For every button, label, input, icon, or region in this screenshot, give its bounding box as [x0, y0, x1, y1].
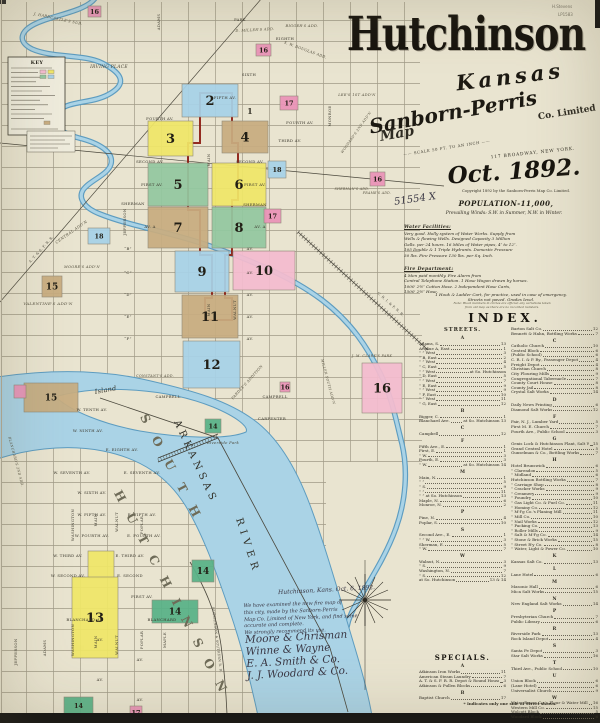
map-text-label: Riverside Park [206, 440, 240, 445]
map-text-label: 1 [247, 106, 253, 116]
map-text-label: AV. A [253, 224, 265, 229]
map-text-label: FOURTH AV. [146, 116, 174, 121]
block-number: 17 [284, 99, 293, 107]
map-text-label: AV. [136, 657, 144, 662]
block-number: 15 [45, 394, 58, 404]
index-entry: Rock Island Depot4 [511, 637, 598, 642]
index-entry: Crystal Salt Works14 [511, 390, 598, 395]
map-text-label: W. FIFTH AV. [78, 512, 107, 517]
index-entry: Mica Salt Works15 [511, 590, 598, 595]
index-entry: Lane Hotel6 [511, 573, 598, 578]
index-buildings-list: Barton Salt Co.12Bennett & Hahn, Bottlin… [511, 327, 598, 720]
map-text-label: W. SIXTH AV. [78, 490, 107, 495]
map-text-label: W. FOURTH AV. [75, 533, 109, 538]
index-entry: Woodard Block6 [511, 715, 598, 720]
note-lines: Note: Block numbers in circles are offic… [414, 302, 590, 310]
map-text-label: AV. [96, 677, 104, 682]
map-text-label: E. SECOND [117, 573, 143, 578]
map-text-label: VALENTINE'S ADD'N [23, 301, 73, 306]
index-entry: New England Salt Works14 [511, 602, 598, 607]
block-number: 16 [373, 382, 391, 397]
block-number: 12 [202, 358, 220, 373]
map-text-label: WALNUT [114, 512, 119, 532]
index-entry: ” W.7 [419, 547, 506, 552]
map-text-label: JEFFERSON [13, 638, 18, 666]
block-number: 16 [373, 175, 383, 183]
map-text-label: MONROE [327, 106, 332, 127]
fire-department-block: Fire Department: 4 Men paid monthly. Fir… [404, 266, 598, 295]
index-entry: ” G, East12 [419, 402, 506, 407]
map-text-label: BLANCHARD AV. [66, 617, 103, 622]
map-text-label: BLANCHARD [148, 617, 177, 622]
index-entry: ” Water, Light & Power Co.10 [511, 547, 598, 552]
map-text-label: FOURTH AV. [286, 120, 314, 125]
key-box [8, 57, 65, 135]
map-text-label: WALNUT [114, 635, 119, 655]
block-number: 8 [234, 221, 243, 236]
map-text-label: POPLAR [139, 631, 144, 649]
index-entry: Fourth Ave., Public School3 [511, 430, 598, 435]
index-streets-list: AAdams, S.13Avenue A, East1 ” ” West3 ” … [419, 334, 506, 583]
map-text-label: AV. [136, 697, 144, 702]
map-text-label: IRVING PLACE [89, 65, 128, 70]
map-text-label: “D” [124, 292, 132, 297]
block-number: 3 [166, 132, 175, 147]
map-text-label: MAIN [93, 513, 98, 526]
block-number: 16 [259, 46, 269, 54]
map-text-label: MAIN [206, 153, 211, 166]
block-number: 16 [90, 8, 100, 16]
map-text-label: AV. A [143, 224, 155, 229]
index-entry: Blanchard Ave.at So. Hutchinson 13 [419, 419, 506, 424]
block-number: 14 [197, 567, 210, 577]
map-text-label: E. EIGHTH AV. [106, 447, 139, 452]
map-text-label: MAPLE [162, 632, 167, 648]
block-number: 14 [74, 702, 84, 710]
map-text-label: FIFTH AV. [214, 95, 236, 100]
map-text-label: “F” [124, 336, 131, 341]
block-number: 10 [255, 264, 273, 279]
water-facilities-block: Water Facilities: Very good. Holly syste… [404, 224, 598, 258]
block-number: 7 [173, 221, 182, 236]
prevailing-winds-line: Prevailing Winds: S.W. in Summer, N.W. i… [414, 211, 594, 217]
map-text-label: PARK [234, 17, 246, 22]
index-entry: ” W.at So. Hutchinson 14 [419, 463, 506, 468]
map-text-label: SECOND AV. [236, 159, 264, 164]
map-block [88, 551, 114, 578]
block-number: 16 [280, 383, 290, 391]
index-columns: STREETS. AAdams, S.13Avenue A, East1 ” ”… [419, 327, 599, 701]
map-text-label: KEY [31, 60, 44, 66]
index-entry: Monroe, N.2 [419, 503, 506, 508]
water-facilities-heading: Water Facilities: [404, 225, 451, 230]
map-text-label: W. TENTH AV. [77, 407, 108, 412]
map-text-label: SHERMAN [243, 202, 267, 207]
map-text-label: AV. [246, 246, 254, 251]
index-entry: Gunselman & Co., Bottling Works7 [511, 451, 598, 456]
map-text-label: CAMPBELL [262, 394, 287, 399]
block-number: 15 [46, 283, 59, 293]
block-number: 14 [208, 422, 218, 430]
population-line: POPULATION-11,000, [420, 200, 592, 208]
map-text-label: JEFFERSON [122, 208, 127, 236]
notes-box [27, 131, 75, 152]
block-number: 17 [268, 212, 277, 220]
testimonial-signatures: Moore & ChrismanWinne & WayneE. A. Smith… [245, 625, 437, 683]
map-text-label: SHERMAN [121, 201, 145, 206]
index-entry: Kansas Salt Co.13 [511, 560, 598, 565]
map-text-label: FRAME'S ADD. [362, 191, 392, 195]
index-entry: Bennett & Hahn, Bottling Works7 [511, 332, 598, 337]
block-number: 4 [240, 131, 249, 146]
map-text-label: FIRST AV. [244, 182, 266, 187]
index-entry: Poplar, S.10 [419, 521, 506, 526]
index-footnote: * Indicates only one side of Street show… [420, 702, 600, 707]
block-number: 18 [272, 166, 282, 174]
map-text-label: “B” [124, 246, 132, 251]
map-text-label: WASHINGTON [70, 624, 75, 657]
index-entry: at So. Hutchinson13 & 14 [419, 578, 506, 583]
index-entry: Atkinson & Pullen Blocks6 [419, 684, 506, 689]
index-entry: Public Library6 [511, 620, 598, 625]
index-entry: Diamond Salt Works12 [511, 408, 598, 413]
map-text-label: E. THIRD AV. [115, 553, 144, 558]
map-text-label: FIRST AV. [131, 594, 153, 599]
map-text-label: MOORE'S ADD'N [63, 265, 100, 269]
sanborn-map-sheet: 2171616163456181878179101112161615151414… [0, 0, 600, 723]
map-text-label: SECOND AV. [136, 159, 164, 164]
block-number: 6 [234, 178, 243, 193]
map-text-label: W. THIRD AV. [53, 553, 83, 558]
map-text-label: CAMPBELL [155, 394, 180, 399]
map-text-label: SIXTH [242, 72, 257, 77]
map-text-label: AV. [246, 336, 254, 341]
index-entry: Third Ave., Public School10 [511, 667, 598, 672]
index-right-column: Barton Salt Co.12Bennett & Hahn, Bottlin… [511, 327, 598, 701]
map-text-label: WASHINGTON [70, 509, 75, 542]
map-text-label: WALNUT [232, 300, 237, 320]
map-text-label: ADAMS [42, 640, 47, 658]
fire-department-heading: Fire Department: [404, 267, 453, 272]
map-text-label: “E” [124, 314, 132, 319]
map-text-label: FIRST AV. [141, 182, 163, 187]
block-number: 9 [197, 265, 206, 280]
map-text-label: E. SEVENTH AV. [124, 470, 160, 475]
index-entry: Universalist Church9 [511, 689, 598, 694]
map-text-label: THIRD AV. [279, 138, 302, 143]
block-number: 18 [94, 232, 104, 240]
map-text-label: BIGGER'S ADD. [285, 24, 319, 28]
map-text-label: MAIN [206, 303, 211, 316]
index-entry: Campbell12 [419, 432, 506, 437]
map-text-label: “C” [124, 270, 132, 275]
map-block [14, 385, 26, 398]
map-text-label: CARPENTER [258, 416, 286, 421]
index-entry: Star Salt Works16 [511, 654, 598, 659]
map-text-label: AV. [246, 292, 254, 297]
map-text-label: AV. [246, 270, 254, 275]
map-text-label: W. SECOND AV. [51, 573, 85, 578]
map-text-label: W. SEVENTH AV. [54, 470, 91, 475]
map-text-label: AV. [246, 314, 254, 319]
map-text-label: J. M. CLARK'S PARK [351, 354, 393, 358]
map-text-label: CONSTANT'S ADD. [136, 374, 174, 378]
block-number: 5 [173, 178, 182, 193]
map-text-label: ADAMS [156, 14, 161, 32]
index-title: INDEX. [430, 311, 580, 325]
map-text-label: LEE'S 1ST ADD'N [337, 93, 376, 97]
map-text-label: MAIN [93, 635, 98, 648]
map-text-label: W. NINTH AV. [73, 428, 103, 433]
index-streets-subtitle: STREETS. [419, 327, 506, 333]
title-city: Hutchinson [334, 6, 598, 62]
